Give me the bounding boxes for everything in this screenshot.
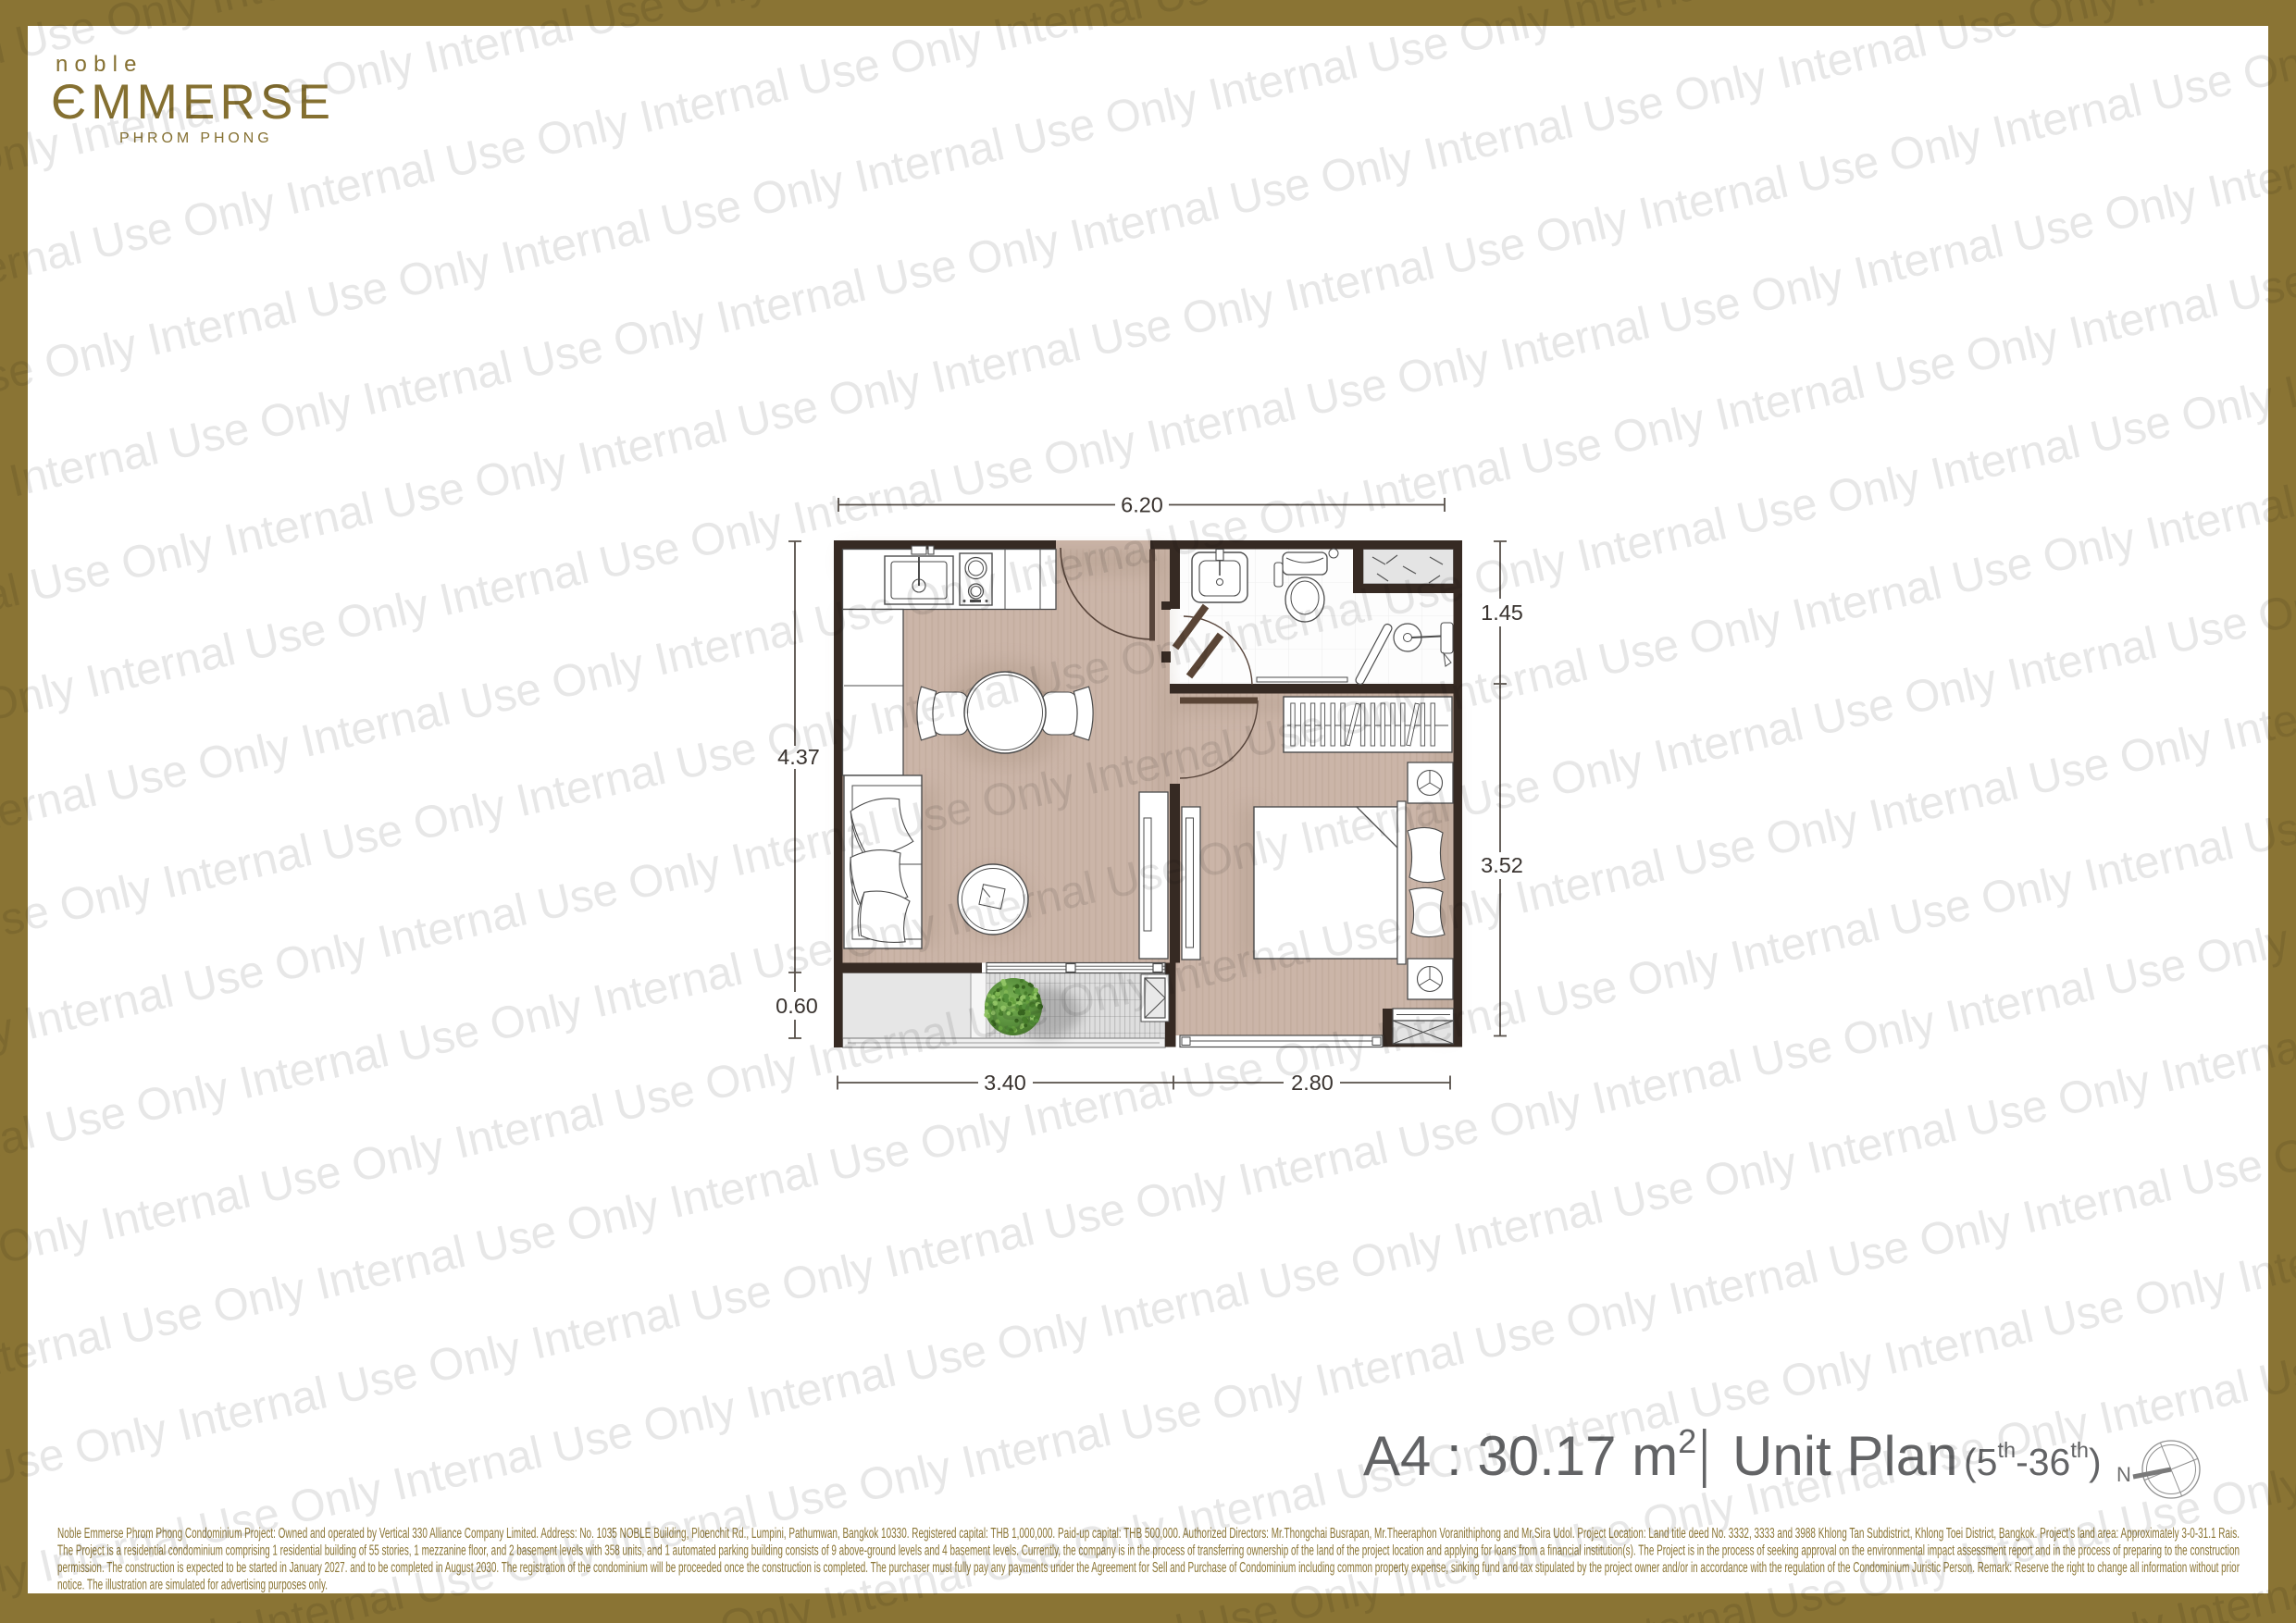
svg-text:0.60: 0.60 [776, 994, 818, 1018]
svg-text:1.45: 1.45 [1481, 601, 1523, 625]
svg-text:6.20: 6.20 [1121, 493, 1163, 517]
svg-text:N: N [2116, 1463, 2131, 1486]
svg-text:3.40: 3.40 [984, 1071, 1026, 1095]
